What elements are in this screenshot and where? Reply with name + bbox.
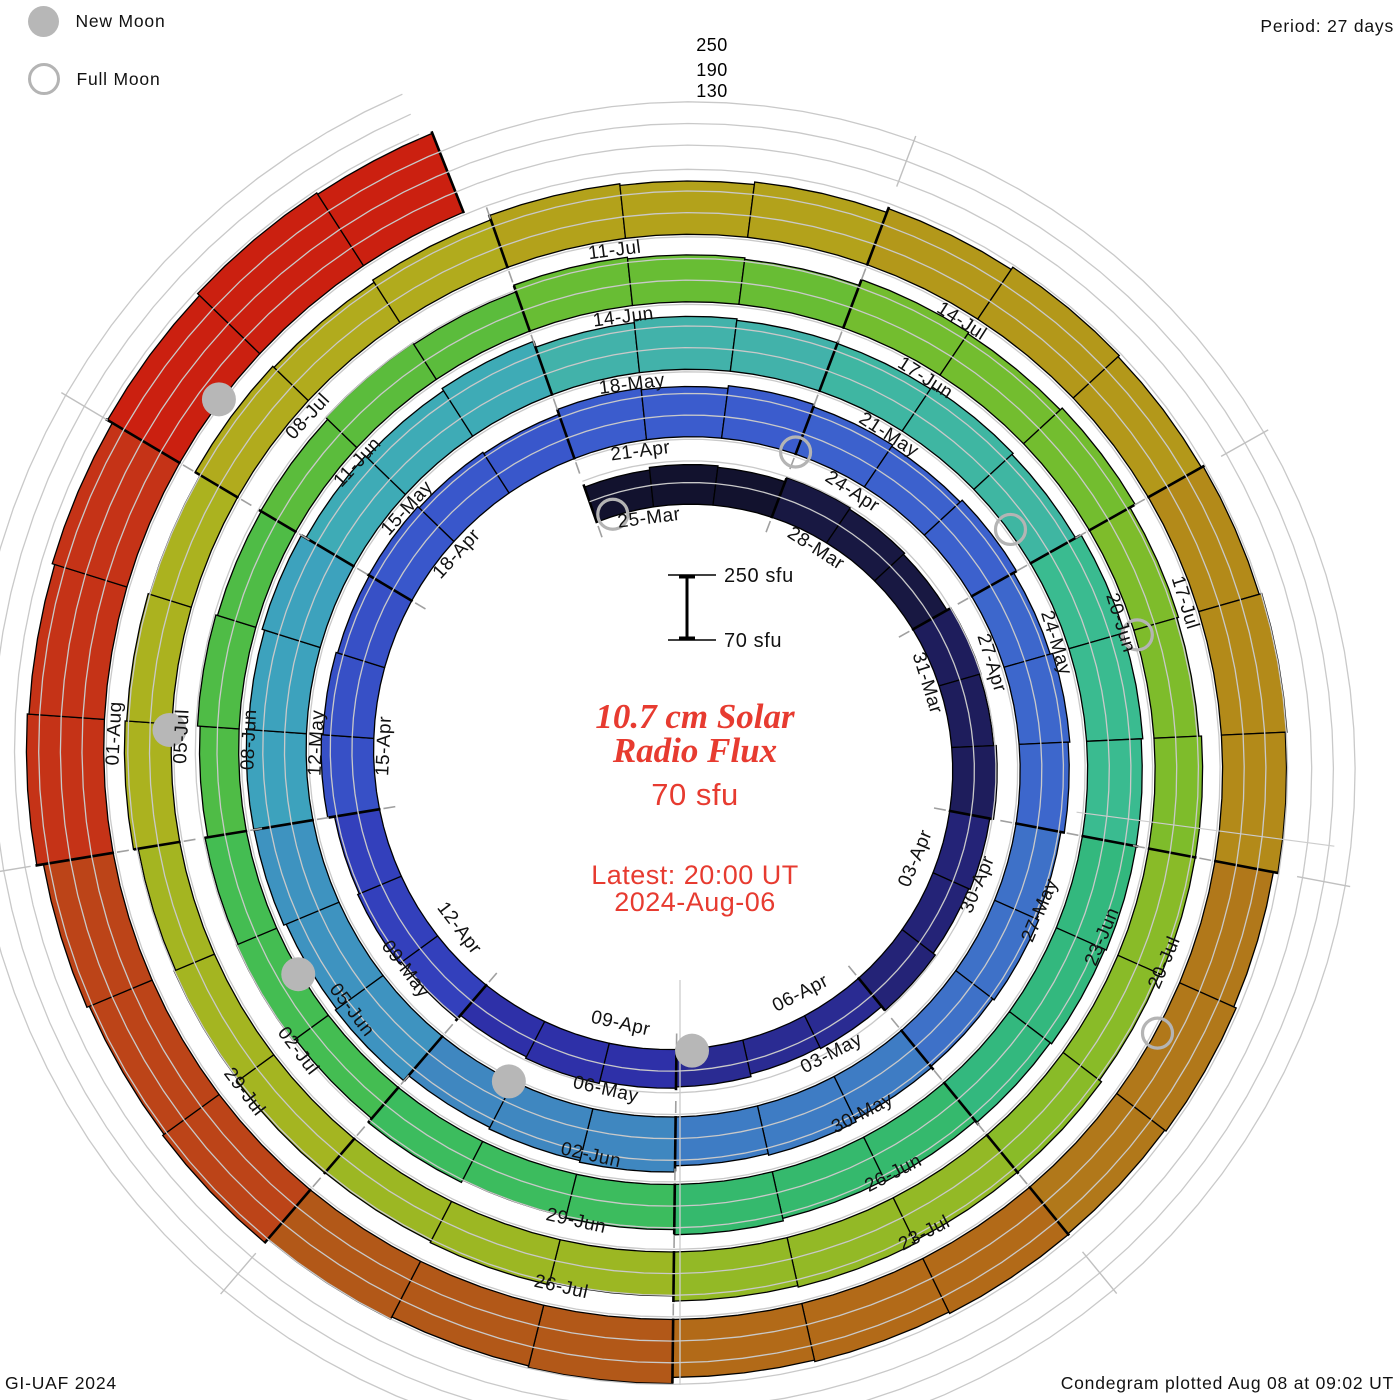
- tick-3day: [317, 818, 329, 820]
- new-moon-marker: [281, 957, 315, 991]
- date-label: 12-May: [305, 709, 329, 776]
- tick-3day: [489, 973, 497, 982]
- center-text-block: 10.7 cm Solar Radio Flux 70 sfu Latest: …: [591, 697, 799, 917]
- tick-3day: [862, 268, 866, 279]
- chart-title-line2: Radio Flux: [612, 731, 777, 770]
- tick-3day: [509, 271, 513, 282]
- credit-label: GI-UAF 2024: [5, 1373, 117, 1394]
- flux-segment: [138, 842, 214, 970]
- tick-3day: [1017, 565, 1027, 571]
- condegram-plot: 25-Mar28-Mar31-Mar03-Apr06-Apr09-Apr12-A…: [0, 0, 1400, 1400]
- tick-3day: [977, 1123, 985, 1132]
- scale-bar-bottom-label: 70 sfu: [724, 630, 782, 652]
- tick-3day: [553, 399, 557, 410]
- flux-segment: [1199, 594, 1287, 736]
- tick-3day: [184, 839, 196, 841]
- full-moon-label: Full Moon: [76, 69, 160, 90]
- flux-segment: [620, 181, 755, 238]
- tick-3day: [1199, 858, 1211, 860]
- tick-3day: [848, 966, 856, 975]
- tick-3day: [241, 499, 251, 505]
- date-label: 01-Aug: [102, 701, 126, 766]
- date-label: 08-Jun: [237, 709, 261, 771]
- tick-3day: [313, 1178, 321, 1187]
- tick-3day: [445, 1024, 453, 1033]
- tick-3day: [117, 850, 129, 852]
- tick-3day: [934, 808, 946, 810]
- period-label: Period: 27 days: [1260, 16, 1394, 37]
- scale-bar: 250 sfu 70 sfu: [668, 565, 794, 652]
- flux-segment: [1082, 739, 1142, 846]
- period-divider: [673, 1251, 674, 1302]
- radial-axis: 250 190 130: [696, 35, 728, 101]
- period-divider: [675, 1116, 676, 1171]
- new-moon-icon: [28, 6, 59, 37]
- new-moon-marker: [492, 1064, 526, 1098]
- flux-segment: [939, 674, 994, 747]
- tick-3day: [1067, 833, 1079, 835]
- tick-3day: [357, 1127, 365, 1136]
- date-label: 15-Apr: [372, 715, 396, 776]
- tick-3day: [576, 462, 580, 473]
- radial-axis-label-250: 250: [696, 35, 728, 55]
- legend-row-full-moon: Full Moon: [28, 63, 166, 97]
- tick-3day: [934, 1070, 942, 1079]
- tick-3day: [183, 465, 193, 471]
- period-divider: [672, 1318, 673, 1383]
- moon-legend: New Moon Full Moon: [28, 6, 166, 120]
- tick-outer: [1221, 430, 1268, 456]
- flux-segment: [634, 316, 737, 372]
- radial-axis-label-130: 130: [696, 81, 728, 101]
- tick-3day: [1019, 1175, 1027, 1184]
- tick-3day: [486, 207, 490, 218]
- scale-bar-top-label: 250 sfu: [724, 565, 794, 587]
- condegram-page: 25-Mar28-Mar31-Mar03-Apr06-Apr09-Apr12-A…: [0, 0, 1400, 1400]
- flux-segment: [29, 564, 127, 719]
- tick-outer: [61, 393, 107, 421]
- flux-segment: [1016, 742, 1069, 833]
- tick-3day: [958, 598, 968, 604]
- date-label: 05-Jul: [170, 709, 194, 765]
- new-moon-marker: [675, 1034, 709, 1068]
- new-moon-marker: [202, 382, 236, 416]
- tick-3day: [598, 526, 602, 537]
- full-moon-icon: [28, 63, 60, 95]
- tick-3day: [1000, 821, 1012, 823]
- flux-segment: [1180, 861, 1274, 1007]
- tick-3day: [766, 521, 770, 532]
- date-label: 09-Apr: [589, 1007, 652, 1041]
- tick-3day: [357, 568, 367, 574]
- plotted-timestamp: Condegram plotted Aug 08 at 09:02 UT: [1061, 1373, 1394, 1394]
- flux-segment: [649, 465, 718, 507]
- flux-segment: [730, 320, 837, 391]
- tick-3day: [415, 603, 425, 609]
- tick-3day: [814, 395, 818, 406]
- tick-3day: [383, 807, 395, 809]
- radial-axis-label-190: 190: [696, 60, 728, 80]
- tick-outer: [1083, 1252, 1117, 1294]
- tick-outer: [221, 1253, 256, 1294]
- tick-3day: [899, 631, 909, 637]
- tick-3day: [1134, 499, 1144, 505]
- tick-3day: [838, 332, 842, 343]
- period-divider: [674, 1183, 675, 1234]
- current-flux-value: 70 sfu: [651, 777, 738, 812]
- new-moon-label: New Moon: [75, 11, 165, 32]
- legend-row-new-moon: New Moon: [28, 6, 166, 40]
- latest-time-line: Latest: 20:00 UT: [591, 860, 799, 890]
- tick-3day: [891, 1018, 899, 1027]
- latest-date-line: 2024-Aug-06: [614, 887, 776, 917]
- flux-segment: [1215, 732, 1287, 873]
- tick-outer: [897, 136, 916, 187]
